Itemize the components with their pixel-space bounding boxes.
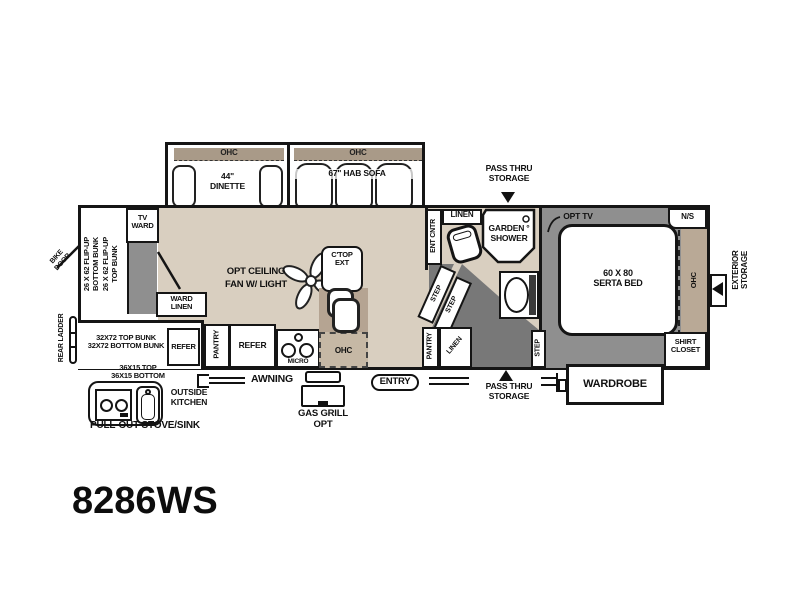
shirt-closet-label: SHIRT CLOSET [664,338,707,355]
bedroom-ohc-label: OHC [690,265,698,295]
pass-thru-top-label: PASS THRU STORAGE [478,164,540,183]
rear-ladder-icon [69,316,77,364]
gas-grill-label: GAS GRILL OPT [288,409,358,430]
countertop-extension-label: C'TOP EXT [321,251,363,268]
kitchen-sink-front [332,298,360,333]
wardrobe-box: WARDROBE [566,364,664,405]
awning-line [209,377,245,384]
pull-out-label: PULL-OUT STOVE/SINK [85,420,205,431]
toilet-bowl [504,277,529,313]
ceiling-fan-label: OPT CEILING FAN W/ LIGHT [222,266,290,292]
ladder-rung-2 [71,346,75,348]
fold-step-icon [541,373,567,393]
ent-center-label: ENT CNTR [430,209,438,263]
bed-label: 60 X 80 SERTA BED [558,268,678,288]
exterior-storage-arrow [712,282,723,296]
outside-kitchen-label: OUTSIDE KITCHEN [164,388,214,407]
shower-head-icon [523,216,529,222]
flip-bunks-label: 26 X 62 FLIP-UP BOTTOM BUNK 26 X 62 FLIP… [82,210,126,318]
kitchen-refer-label: REFER [229,341,276,351]
bunks-32-label: 32X72 TOP BUNK 32X72 BOTTOM BUNK [82,334,170,351]
outside-stove [95,389,132,421]
bath-sink-lip [452,230,472,242]
burner-small [294,333,303,342]
tv-wardrobe-label: TV WARD [126,214,159,231]
garden-shower-label: GARDEN ° SHOWER [482,224,536,243]
kitchen-ohc-label: OHC [319,347,368,356]
night-stand-label: N/S [668,213,707,222]
pass-thru-bottom-label: PASS THRU STORAGE [475,382,543,401]
outside-sink-basin [141,394,155,420]
pass-thru-bottom-arrow [499,370,513,381]
ward-linen-label: WARD LINEN [156,295,207,312]
pass-thru-top-arrow [501,192,515,203]
awning-bracket [197,374,209,388]
outside-stove-knobs [120,413,128,417]
bath-linen-label: LINEN [442,211,482,220]
entry-door: ENTRY [371,374,419,391]
bunk-refer-label: REFER [167,343,200,351]
awning-label: AWNING [246,374,298,386]
fold-step-line-2 [541,384,556,386]
rear-ladder-label: REAR LADDER [58,306,66,370]
outside-burner-1 [100,399,113,412]
burner-left [281,343,296,358]
bunk-room-door-swing [158,252,180,289]
entry-side-lines [429,377,469,385]
model-title: 8286WS [72,480,292,523]
gas-grill-body [301,385,345,407]
outside-sink-faucet [145,389,151,395]
opt-tv-label: OPT TV [556,212,600,222]
outside-size-label: 36X15 TOP 36X15 BOTTOM [96,364,180,381]
outside-sink [136,386,160,424]
entry-label: ENTRY [380,377,411,388]
bedroom-step-label: STEP [535,329,543,366]
fold-step-line-1 [541,377,556,379]
exterior-storage-label: EXTERIOR STORAGE [732,230,758,310]
kitchen-pantry-label: PANTRY [212,323,220,366]
ladder-rung-1 [71,332,75,334]
wardrobe-label: WARDROBE [583,378,647,390]
gas-grill-lid [305,371,341,383]
burner-right [299,343,314,358]
micro-label: MICRO [276,358,320,365]
floorplan-canvas: OHC 44" DINETTE OHC 67" HAB SOFA [0,0,800,600]
toilet-tank [529,275,536,315]
outside-burner-2 [115,399,128,412]
gas-grill-handle [318,401,328,405]
bath-pantry-label: PANTRY [427,325,435,366]
